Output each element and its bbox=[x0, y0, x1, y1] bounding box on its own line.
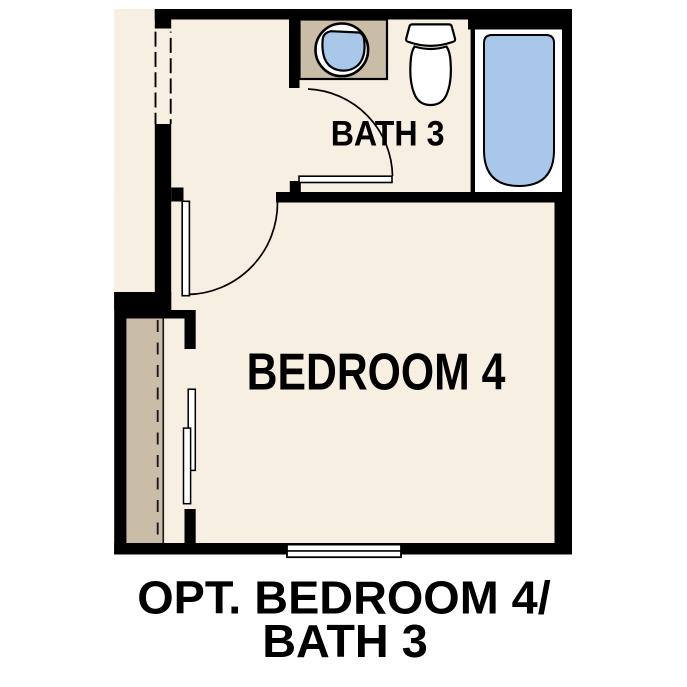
svg-text:BATH 3: BATH 3 bbox=[262, 615, 428, 667]
svg-text:BEDROOM 4: BEDROOM 4 bbox=[247, 344, 506, 402]
svg-text:BATH 3: BATH 3 bbox=[331, 116, 445, 155]
